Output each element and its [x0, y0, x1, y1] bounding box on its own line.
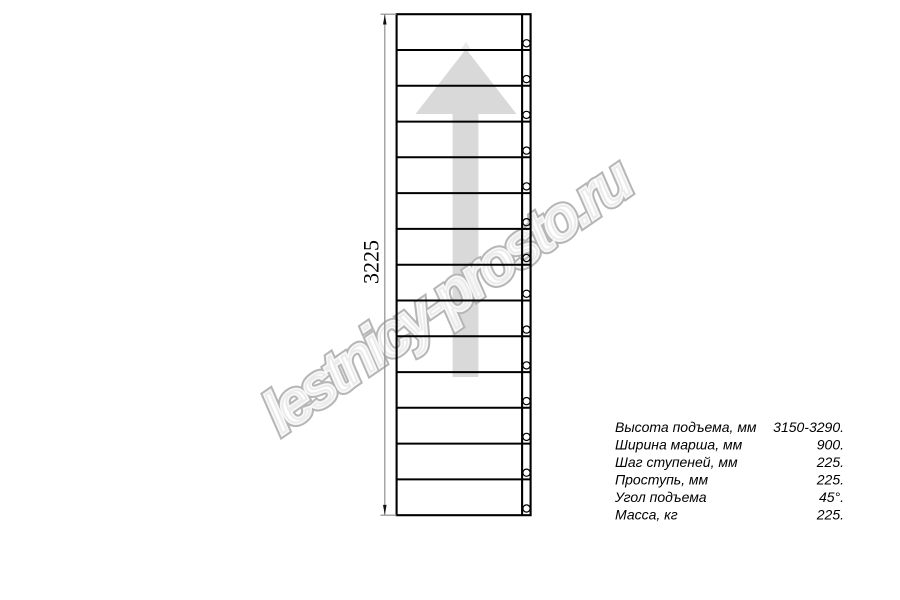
svg-text:Масса, кг: Масса, кг — [615, 507, 678, 523]
svg-text:45°.: 45°. — [819, 489, 844, 505]
svg-text:Ширина марша, мм: Ширина марша, мм — [615, 437, 743, 453]
svg-text:lestnicy-prosto.ru: lestnicy-prosto.ru — [250, 144, 646, 448]
svg-text:Угол подъема: Угол подъема — [614, 489, 707, 505]
svg-text:Шаг ступеней, мм: Шаг ступеней, мм — [615, 454, 738, 470]
svg-text:225.: 225. — [816, 472, 844, 488]
svg-text:900.: 900. — [817, 437, 844, 453]
svg-text:225.: 225. — [816, 507, 844, 523]
svg-text:Проступь, мм: Проступь, мм — [615, 472, 709, 488]
svg-text:Высота подъема, мм: Высота подъема, мм — [615, 419, 757, 435]
svg-text:3150-3290.: 3150-3290. — [773, 419, 844, 435]
svg-text:3225: 3225 — [359, 240, 384, 284]
svg-text:225.: 225. — [816, 454, 844, 470]
